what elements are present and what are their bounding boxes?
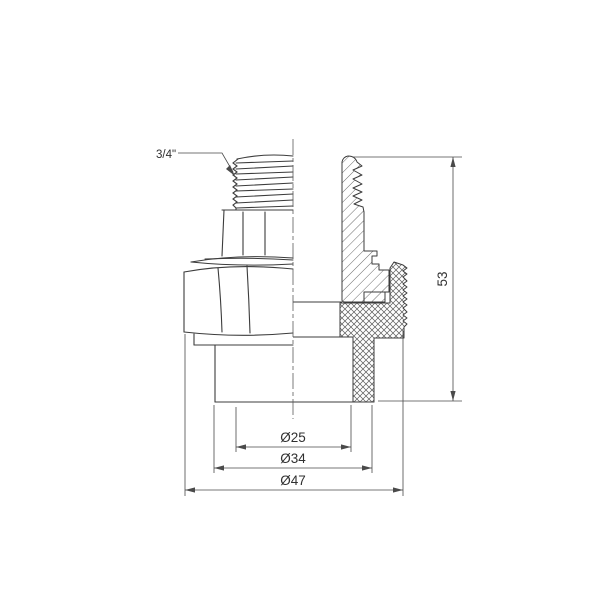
thread-size-label: 3/4"	[156, 149, 176, 161]
diameter-middle-label: Ø34	[280, 451, 306, 466]
dimensions	[178, 153, 462, 496]
arrow-left	[214, 465, 224, 470]
arrow-right	[362, 465, 372, 470]
insert-section	[342, 156, 389, 302]
diameter-inner-label: Ø25	[280, 430, 306, 445]
arrow-left	[185, 487, 195, 492]
leader-arrowhead	[226, 165, 235, 176]
arrow-right	[393, 487, 403, 492]
arrow-right	[341, 444, 351, 449]
gasket-section	[364, 292, 385, 302]
arrow-down	[450, 391, 455, 401]
right-section-view	[293, 156, 407, 402]
leader-thread-size	[178, 153, 235, 176]
hex-neck-view	[222, 210, 293, 256]
arrow-up	[450, 157, 455, 167]
lip-washer-view	[191, 257, 293, 265]
fitting-drawing: 3/4" 53 Ø25 Ø34 Ø47	[0, 0, 600, 600]
hex-collar-view	[184, 266, 293, 335]
diameter-outer-label: Ø47	[280, 473, 306, 488]
thread-left-crest	[233, 159, 238, 210]
socket-view	[215, 345, 374, 402]
male-thread-view	[233, 155, 293, 210]
arrow-left	[236, 444, 246, 449]
technical-drawing-canvas: 3/4" 53 Ø25 Ø34 Ø47	[0, 0, 600, 600]
height-label: 53	[435, 271, 450, 286]
